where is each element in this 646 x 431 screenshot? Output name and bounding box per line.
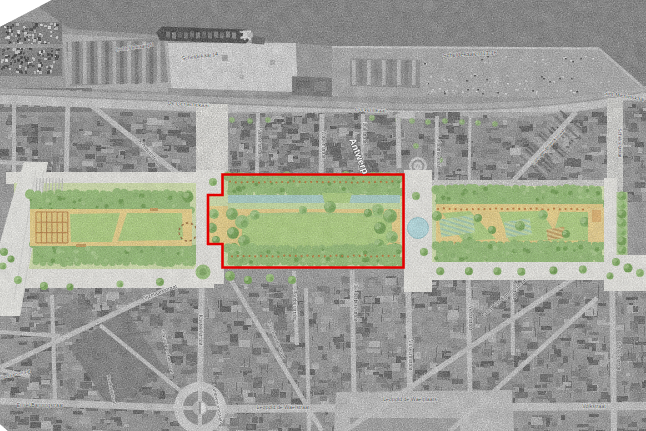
svg-text:Tolstraat: Tolstraat [512, 281, 517, 300]
svg-text:Scheldestraat: Scheldestraat [617, 128, 622, 158]
svg-text:Luikstraat: Luikstraat [362, 123, 367, 144]
svg-text:Emiel Banningstraat: Emiel Banningstraat [17, 402, 64, 408]
svg-text:Volkstraat: Volkstraat [582, 403, 606, 409]
svg-text:Verlatstraat: Verlatstraat [468, 306, 473, 331]
svg-text:Namenstraat: Namenstraat [257, 128, 262, 156]
svg-text:Leopold de Waelplaats: Leopold de Waelplaats [383, 396, 437, 402]
svg-text:Kasteelstraat: Kasteelstraat [198, 315, 204, 346]
svg-text:Museumstraat: Museumstraat [408, 340, 413, 371]
svg-text:De Burburestraat: De Burburestraat [353, 285, 358, 322]
svg-text:Leopold de Waelstraat: Leopold de Waelstraat [257, 404, 310, 410]
svg-text:Vlaamsekaai: Vlaamsekaai [436, 139, 441, 166]
svg-text:Wapenstraat: Wapenstraat [321, 131, 326, 159]
svg-text:Pourbusstraat: Pourbusstraat [292, 290, 297, 321]
svg-text:Scheldestraat: Scheldestraat [616, 341, 621, 371]
